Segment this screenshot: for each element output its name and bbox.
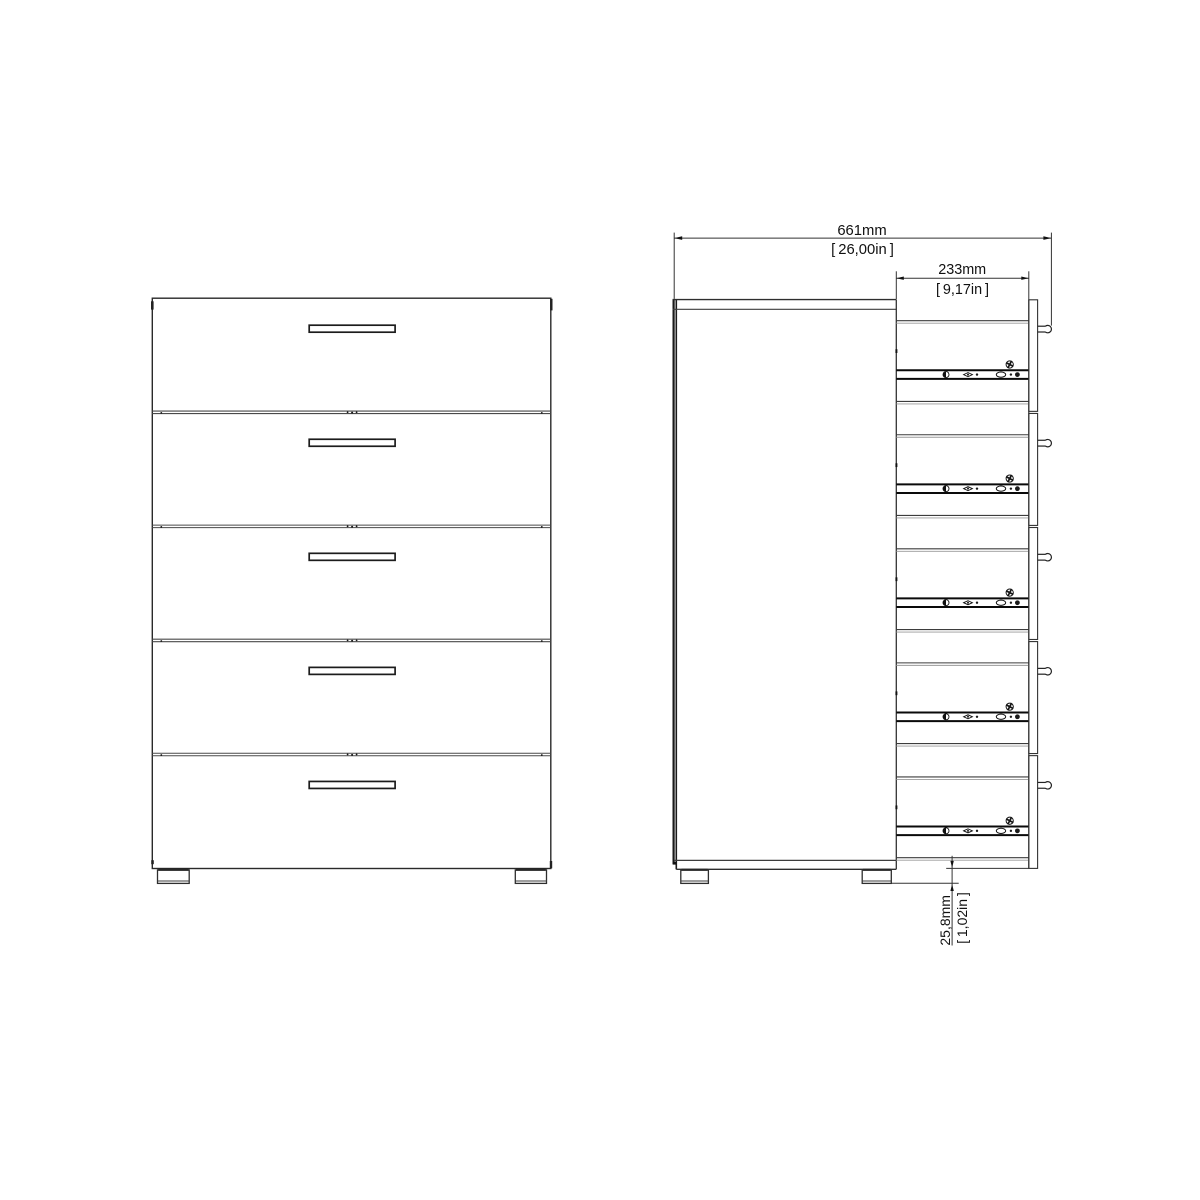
svg-text:661mm: 661mm <box>837 223 886 239</box>
svg-text:[ 9,17in ]: [ 9,17in ] <box>936 282 989 298</box>
svg-text:[ 26,00in ]: [ 26,00in ] <box>831 242 894 258</box>
svg-text:25,8mm: 25,8mm <box>937 895 953 946</box>
svg-text:233mm: 233mm <box>938 262 986 278</box>
svg-text:[ 1,02in ]: [ 1,02in ] <box>954 892 970 944</box>
